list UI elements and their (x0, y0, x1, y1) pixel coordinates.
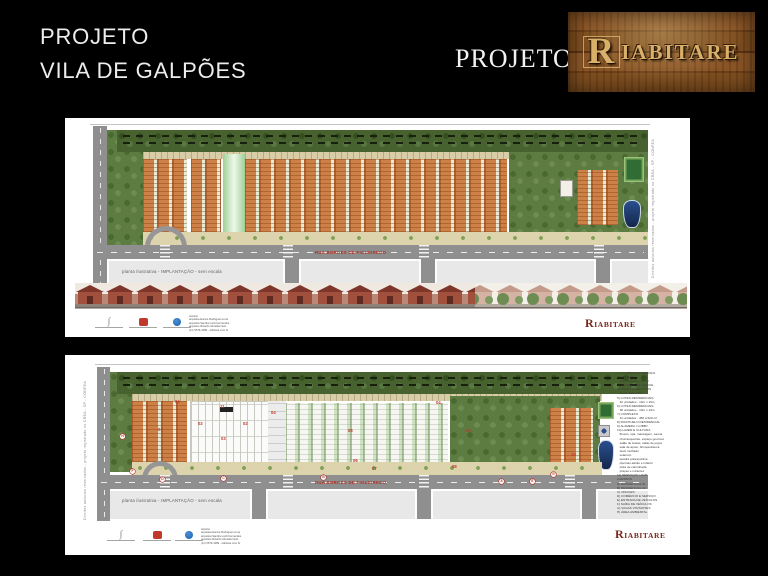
lot-boundary-line (95, 364, 650, 365)
brand-prefix-text: PROJETO (455, 44, 573, 74)
partner-logo-red (129, 318, 157, 328)
plan-number-label: 06 (353, 458, 358, 463)
city-blocks (110, 491, 648, 519)
partner-logo-blue (163, 318, 191, 328)
side-street-stub (250, 489, 268, 519)
tree-band (117, 130, 648, 152)
lot-boundary-line (90, 124, 650, 125)
side-street-stub (419, 259, 437, 286)
plan-number-label: 03 (221, 436, 226, 441)
riabitare-wood-logo: RIABITARE (568, 12, 755, 92)
partner-logo-signature: ∫ (107, 530, 135, 541)
side-street-stub (580, 489, 598, 519)
side-street-stub (594, 259, 612, 286)
plan-number-label: 08 (452, 464, 457, 469)
rail-ties-row (123, 377, 642, 379)
plan-number-label: 07 (372, 466, 377, 471)
access-letter-marker: E (530, 479, 535, 484)
side-street-stub (283, 259, 301, 286)
plan-number-label: 02 (198, 421, 203, 426)
logo-text-bar (107, 540, 135, 541)
siteplan-panel-1: RUA BORGES DE FIGUEIREDO planta ilustrat… (65, 118, 690, 337)
crosswalk (160, 245, 170, 259)
crosswalk (565, 475, 575, 489)
riabitare-small-initial: R (615, 527, 624, 541)
red-mark-icon (153, 531, 162, 539)
signature-icon: ∫ (108, 317, 111, 326)
spa-structure (598, 425, 610, 437)
red-mark-icon (139, 318, 148, 326)
logo-text-bar (129, 327, 157, 328)
plan-number-label: 05 (348, 428, 353, 433)
crosswalk (594, 245, 604, 259)
warehouse-block (191, 159, 221, 232)
side-road-vertical (97, 367, 110, 521)
rail-ties-row (123, 135, 642, 137)
warehouse-rows (245, 159, 507, 232)
signature-icon: ∫ (120, 530, 123, 539)
plan-number-label: 02 (243, 421, 248, 426)
partner-logo-blue (175, 531, 203, 541)
plan-number-label: 04 (175, 399, 180, 404)
page-title-line-1: PROJETO (40, 24, 149, 50)
rail-ties-row (123, 384, 642, 386)
warehouse-block (143, 159, 187, 232)
blue-mark-icon (185, 531, 193, 539)
clubhouse-building (560, 180, 573, 197)
access-letter-marker: A (499, 479, 504, 484)
credits-block: Autoria:arquiteta Eunice Rodrigues Limaa… (201, 528, 241, 545)
swimming-pool (623, 200, 641, 228)
riabitare-small-rest: IABITARE (624, 531, 665, 540)
plan-caption: planta ilustrativa - IMPLANTAÇÃO - sem e… (122, 498, 222, 503)
access-letter-marker: H (120, 434, 125, 439)
plan-number-label: 04 (271, 410, 276, 415)
crosswalk (419, 475, 429, 489)
plan-number-label: 10 (571, 452, 576, 457)
riabitare-small-rest: IABITARE (594, 320, 635, 329)
access-letter-marker: G (551, 472, 556, 477)
access-letter-marker: C (221, 476, 226, 481)
street-name-label: RUA BORGES DE FIGUEIREDO (315, 480, 386, 485)
legend-line: H) ÁREA AMBIENTAL (617, 510, 687, 514)
access-letter-marker: B (321, 475, 326, 480)
main-street: RUA BORGES DE FIGUEIREDO (97, 475, 648, 489)
riabitare-logo-initial: R (583, 36, 620, 68)
riabitare-logo-word: RIABITARE (583, 36, 739, 68)
tree-band (117, 372, 648, 394)
partner-logo-signature: ∫ (95, 317, 123, 328)
street-name-label: RUA BORGES DE FIGUEIREDO (315, 250, 386, 255)
residential-lot-rows (286, 403, 448, 465)
plan-caption: planta ilustrativa - IMPLANTAÇÃO - sem e… (122, 269, 222, 274)
plan-number-label: 09 (466, 428, 471, 433)
rail-ties-row (123, 142, 642, 144)
facade-elevation-drawing (75, 283, 687, 309)
sidewalk-plaza (132, 462, 602, 475)
logo-text-bar (175, 540, 203, 541)
crosswalk (283, 475, 293, 489)
siteplan-panel-2: Direitos autorais reservados - projeto r… (65, 355, 690, 555)
plan-number-label: 04 (436, 400, 441, 405)
sidewalk-plaza (143, 232, 648, 245)
plan-number-label: 01 (158, 427, 163, 432)
green-corridor (223, 154, 245, 232)
riabitare-small-logo: RIABITARE (615, 527, 666, 542)
warehouse-group-right (577, 170, 618, 225)
logo-text-bar (163, 327, 191, 328)
side-road-vertical (93, 126, 107, 286)
blue-mark-icon (173, 318, 181, 326)
main-street: RUA BORGES DE FIGUEIREDO (93, 245, 648, 259)
crosswalk (419, 245, 429, 259)
legend-list: 1) COMÉRCIO E SERVIÇO2) OFFICES 132 unid… (617, 371, 687, 514)
residential-block-10 (550, 408, 593, 468)
plan-number-label: 11 (220, 404, 224, 409)
logo-text-bar (143, 540, 171, 541)
credit-line: (11) 5579-3089 - riabitare.com.br (201, 542, 241, 545)
riabitare-small-logo: RIABITARE (585, 316, 636, 331)
copyright-vertical-text: Direitos autorais reservados - projeto r… (83, 370, 87, 520)
crosswalk (283, 245, 293, 259)
sports-court (624, 157, 644, 182)
credit-line: (11) 5579-3089 - riabitare.com.br (189, 329, 229, 332)
page-title-line-2: VILA DE GALPÕES (40, 58, 246, 84)
riabitare-logo-rest: IABITARE (621, 40, 739, 65)
partner-logo-red (143, 531, 171, 541)
logo-text-bar (95, 327, 123, 328)
access-letter-marker: D (160, 477, 165, 482)
riabitare-small-initial: R (585, 316, 594, 330)
credits-block: Autoria:arquiteta Eunice Rodrigues Limaa… (189, 315, 229, 332)
road-marking (100, 128, 101, 284)
copyright-vertical-text: Direitos autorais reservados - projeto r… (651, 128, 655, 278)
road-marking (104, 369, 105, 519)
sports-court (598, 402, 614, 419)
slide: PROJETO VILA DE GALPÕES PROJETO RIABITAR… (0, 0, 768, 576)
side-street-stub (415, 489, 433, 519)
access-letter-marker: F (130, 469, 135, 474)
